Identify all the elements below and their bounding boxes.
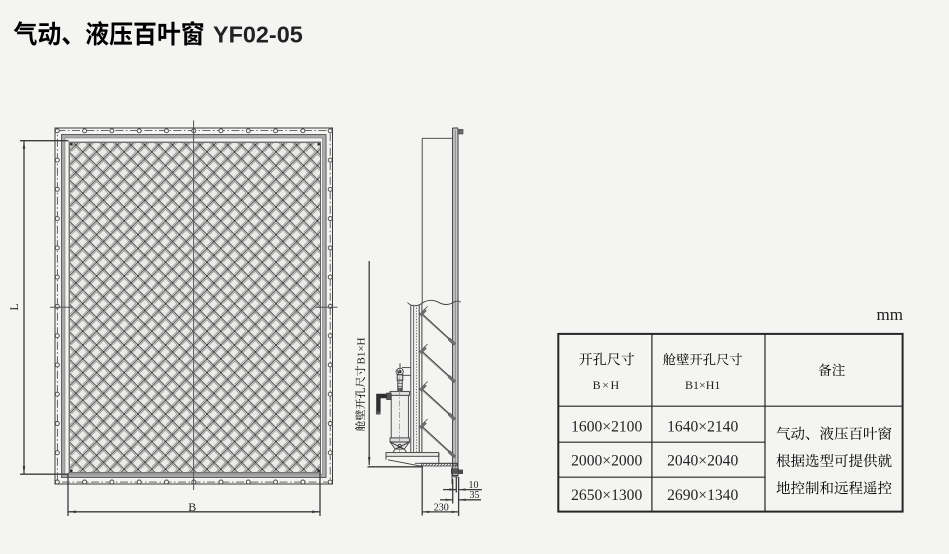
svg-text:L: L [7, 303, 21, 310]
svg-text:mm: mm [877, 305, 903, 324]
svg-text:YF02-05: YF02-05 [213, 21, 303, 47]
svg-text:1600×2100: 1600×2100 [571, 418, 642, 435]
svg-text:2690×1340: 2690×1340 [667, 487, 738, 504]
svg-text:35: 35 [470, 490, 480, 501]
svg-text:B×H: B×H [593, 378, 621, 392]
svg-text:B1×H: B1×H [355, 337, 367, 364]
svg-text:2040×2040: 2040×2040 [667, 453, 738, 470]
svg-text:B: B [188, 500, 196, 514]
svg-text:230: 230 [434, 503, 449, 514]
svg-text:2000×2000: 2000×2000 [571, 453, 642, 470]
svg-text:B1×H1: B1×H1 [685, 378, 720, 392]
svg-text:2650×1300: 2650×1300 [571, 487, 642, 504]
svg-text:1640×2140: 1640×2140 [667, 418, 738, 435]
